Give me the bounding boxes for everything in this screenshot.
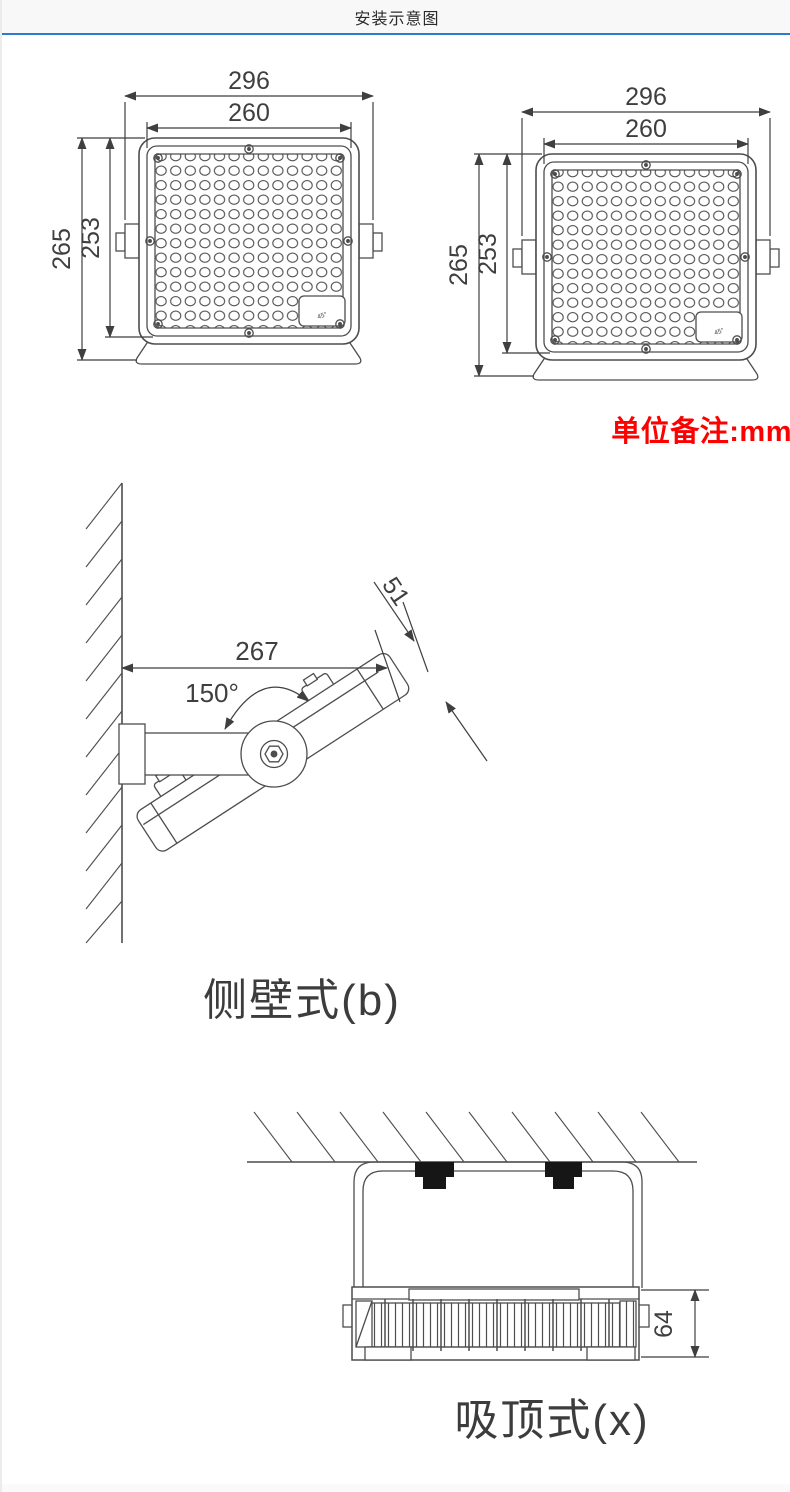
unit-note: 单位备注:mm [611,408,790,450]
dim-width-outer: 296 [228,67,270,95]
mount-yoke-outer [354,1162,642,1288]
dim-height-inner: 253 [77,217,105,259]
floodlight-front-body [116,138,382,364]
installation-diagram-page: 安装示意图 296 260 265 253 45° 296 260 265 25… [0,0,790,1492]
floodlight-front-body [513,154,779,380]
footer-band [2,1484,790,1492]
ceiling-mount-drawing: 64 [217,1085,777,1407]
wall-mount-drawing: 267 51 150° [62,470,497,965]
wall-hatching [86,483,122,943]
wall-mount-caption: 侧壁式(b) [142,964,462,1028]
section-title: 安装示意图 [354,5,439,29]
wall-plate [119,724,145,784]
mount-yoke-inner [363,1171,633,1288]
dim-width-inner: 260 [228,99,270,127]
dim-height-outer: 265 [445,244,473,286]
dim-height-inner: 253 [474,233,502,275]
pivot-center [271,751,277,757]
dim-reach: 267 [235,636,278,666]
dim-end-offset: 51 [376,572,415,611]
ceiling-fixing-tab [545,1162,582,1189]
ceiling-hatching [254,1112,679,1162]
section-header: 安装示意图 [2,0,790,35]
floodlight-side-body [343,1287,649,1360]
front-view-left-drawing: 296 260 265 253 45° [37,62,392,394]
dim-depth: 64 [650,1310,678,1338]
ceiling-fixing-tab [415,1162,454,1189]
dim-width-outer: 296 [625,83,667,111]
dim-width-inner: 260 [625,115,667,143]
angle-label: 150° [185,678,239,708]
dim-height-outer: 265 [48,228,76,270]
ceiling-mount-caption: 吸顶式(x) [402,1384,702,1448]
front-view-right-drawing: 296 260 265 253 45° [434,78,789,410]
